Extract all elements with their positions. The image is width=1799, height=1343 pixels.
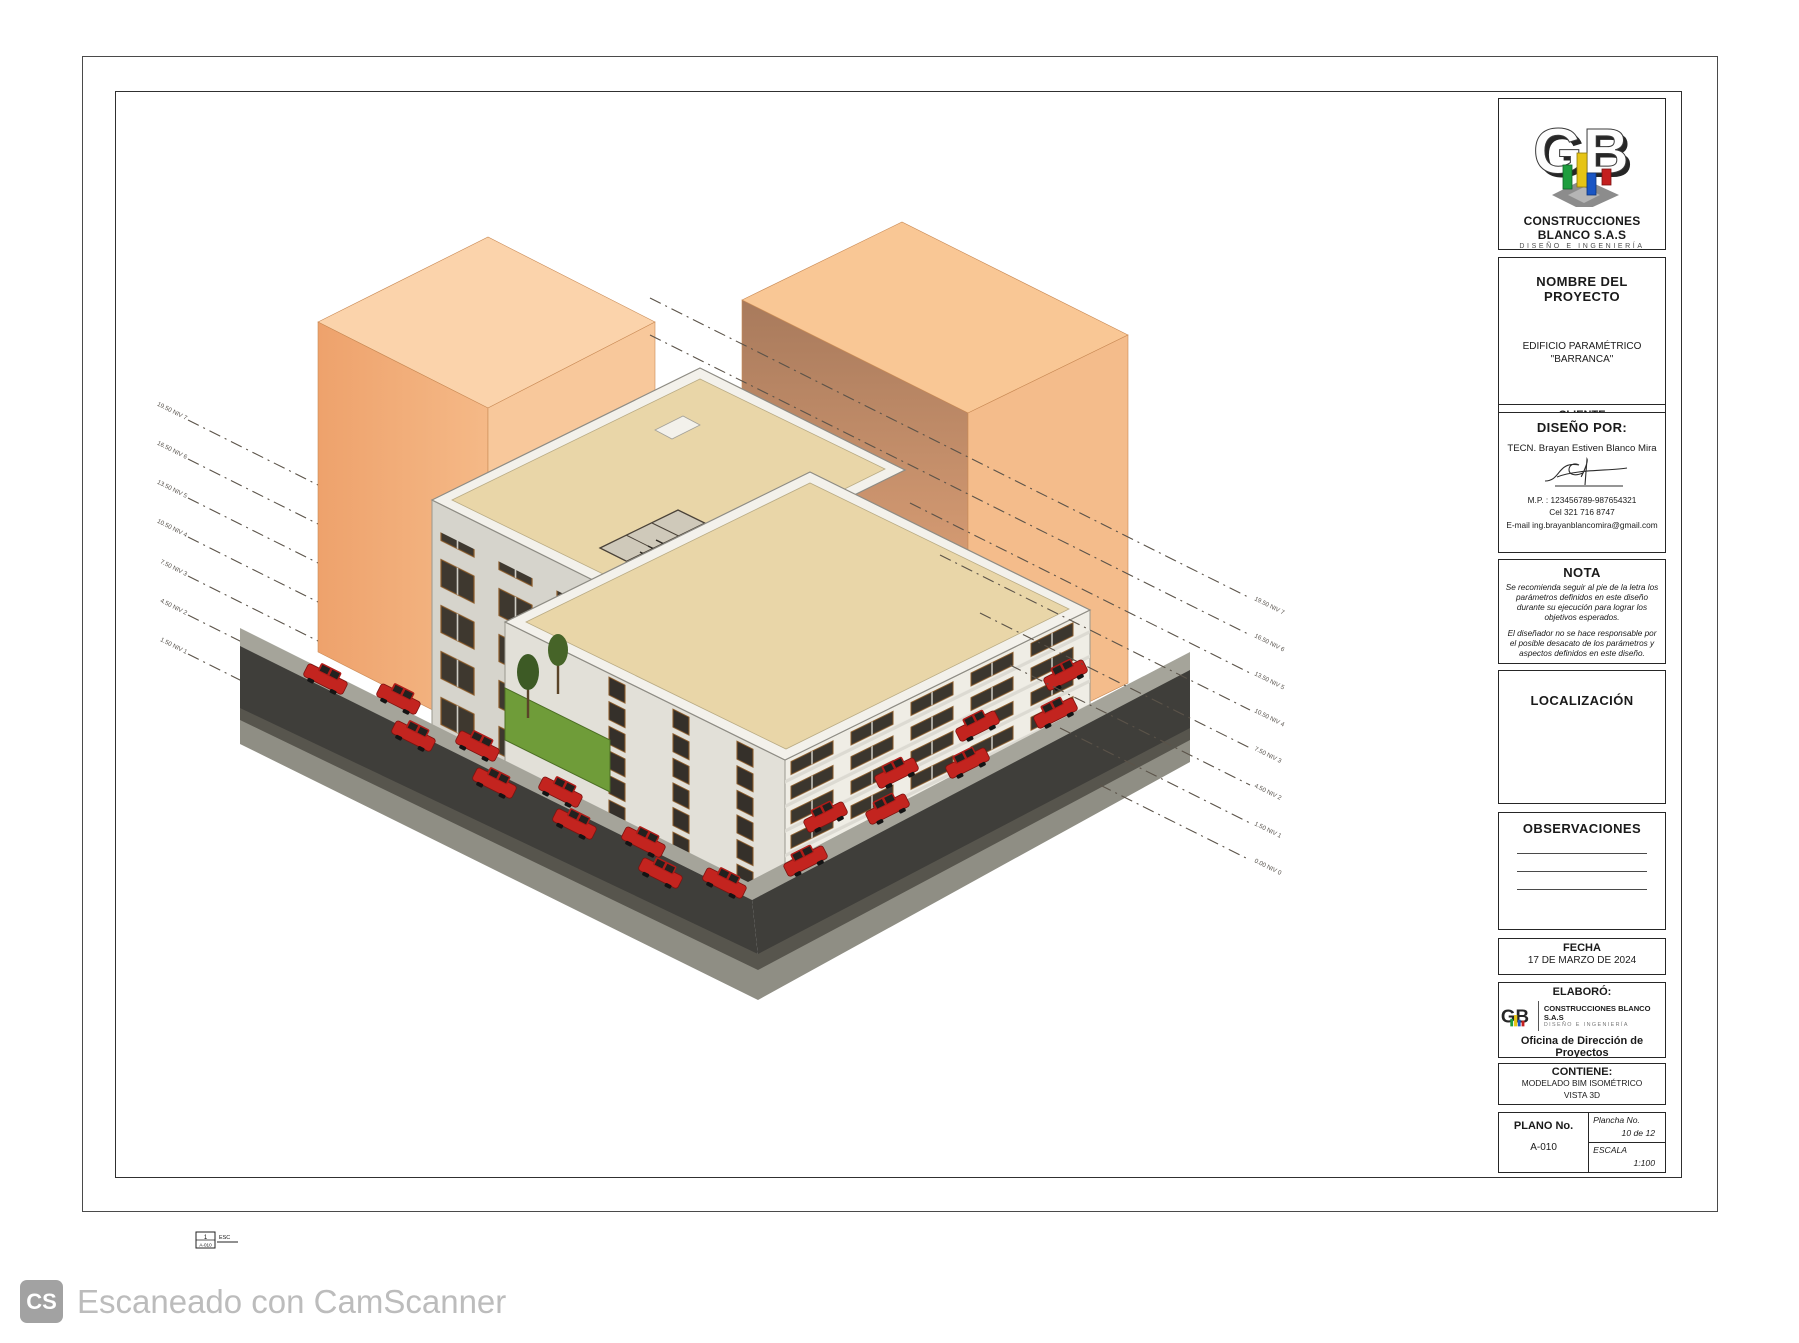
svg-text:19.50 NIV 7: 19.50 NIV 7 [1253,596,1286,617]
elaboro-heading: ELABORÓ: [1499,986,1665,998]
elaboro-office: Oficina de Dirección de Proyectos [1499,1035,1665,1058]
designer-name: TECN. Brayan Estiven Blanco Mira [1499,443,1665,455]
fecha-box: FECHA 17 DE MARZO DE 2024 [1498,938,1666,975]
contiene-line1: MODELADO BIM ISOMÉTRICO [1499,1078,1665,1088]
svg-text:16.50 NIV 6: 16.50 NIV 6 [1253,633,1286,654]
escala-value: 1:100 [1593,1158,1661,1168]
svg-text:7.50 NIV 3: 7.50 NIV 3 [1253,746,1283,766]
svg-text:13.50 NIV 5: 13.50 NIV 5 [1253,671,1286,692]
fecha-value: 17 DE MARZO DE 2024 [1499,954,1665,967]
project-name-line1: EDIFICIO PARAMÉTRICO [1499,340,1665,353]
designer-mp: M.P. : 123456789-987654321 [1499,494,1665,506]
designer-box: DISEÑO POR: TECN. Brayan Estiven Blanco … [1498,412,1666,553]
project-name-line2: "BARRANCA" [1499,353,1665,366]
svg-text:1.50 NIV 1: 1.50 NIV 1 [159,636,189,656]
elaboro-company: CONSTRUCCIONES BLANCO S.A.S [1544,1004,1665,1022]
elaboro-box: ELABORÓ: GB CONSTRUCCIONES BLANCO S.A.S … [1498,982,1666,1058]
divider [1538,1001,1539,1031]
designer-cel: Cel 321 716 8747 [1499,506,1665,518]
contiene-box: CONTIENE: MODELADO BIM ISOMÉTRICO VISTA … [1498,1063,1666,1105]
level-labels-left: 19.50 NIV 7 16.50 NIV 6 13.50 NIV 5 10.5… [156,401,189,656]
svg-text:ESC: ESC [219,1235,230,1241]
svg-text:16.50 NIV 6: 16.50 NIV 6 [156,440,189,461]
observaciones-blank-line [1517,889,1646,890]
svg-text:1.50 NIV 1: 1.50 NIV 1 [1253,821,1283,841]
plano-number: A-010 [1499,1141,1588,1154]
company-logo-box: GB GB CONSTRUCCIONES BLANCO S.A.S DISEÑO… [1498,98,1666,250]
company-name: CONSTRUCCIONES BLANCO S.A.S [1499,214,1665,242]
designer-heading: DISEÑO POR: [1499,420,1665,435]
observaciones-box: OBSERVACIONES [1498,812,1666,930]
svg-text:13.50 NIV 5: 13.50 NIV 5 [156,479,189,500]
escala-label: ESCALA [1593,1145,1661,1155]
gb-logo-small-icon: GB [1499,1001,1533,1031]
svg-text:A-010: A-010 [199,1243,212,1248]
designer-email: E-mail ing.brayanblancomira@gmail.com [1499,519,1665,531]
elaboro-tagline: DISEÑO E INGENIERÍA [1544,1022,1665,1028]
contiene-line2: VISTA 3D [1499,1090,1665,1100]
localizacion-heading: LOCALIZACIÓN [1499,693,1665,708]
nota-heading: NOTA [1499,565,1665,580]
svg-text:7.50 NIV 3: 7.50 NIV 3 [159,558,189,578]
localizacion-box: LOCALIZACIÓN [1498,670,1666,804]
plancha-label: Plancha No. [1593,1115,1661,1125]
plano-box: PLANO No. A-010 Plancha No. 10 de 12 ESC… [1498,1112,1666,1173]
svg-text:10.50 NIV 4: 10.50 NIV 4 [156,518,189,539]
view-reference-tag: 1 A-010 ESC [196,1232,238,1248]
svg-text:10.50 NIV 4: 10.50 NIV 4 [1253,708,1286,729]
project-heading: NOMBRE DEL PROYECTO [1499,274,1665,304]
sheet-page: 19.50 NIV 7 16.50 NIV 6 13.50 NIV 5 10.5… [0,0,1799,1343]
svg-text:0.00 NIV 0: 0.00 NIV 0 [1253,858,1283,878]
camscanner-badge-icon: CS [20,1280,63,1323]
observaciones-blank-line [1517,853,1646,854]
svg-text:4.50 NIV 2: 4.50 NIV 2 [159,597,189,617]
plancha-value: 10 de 12 [1593,1128,1661,1138]
nota-paragraph-2: El diseñador no se hace responsable por … [1505,629,1659,659]
svg-text:4.50 NIV 2: 4.50 NIV 2 [1253,783,1283,803]
observaciones-heading: OBSERVACIONES [1499,821,1665,836]
signature-icon [1527,455,1637,489]
nota-paragraph-1: Se recomienda seguir al pie de la letra … [1505,583,1659,623]
company-tagline: DISEÑO E INGENIERÍA [1499,243,1665,250]
nota-box: NOTA Se recomienda seguir al pie de la l… [1498,559,1666,664]
plano-heading: PLANO No. [1499,1120,1588,1132]
level-labels-right: 19.50 NIV 7 16.50 NIV 6 13.50 NIV 5 10.5… [1253,596,1286,878]
camscanner-text: Escaneado con CamScanner [77,1283,506,1321]
gb-logo-icon: GB GB [1507,103,1657,207]
svg-text:19.50 NIV 7: 19.50 NIV 7 [156,401,189,422]
fecha-heading: FECHA [1499,942,1665,954]
contiene-heading: CONTIENE: [1499,1066,1665,1078]
observaciones-blank-line [1517,871,1646,872]
camscanner-watermark: CS Escaneado con CamScanner [20,1280,506,1323]
